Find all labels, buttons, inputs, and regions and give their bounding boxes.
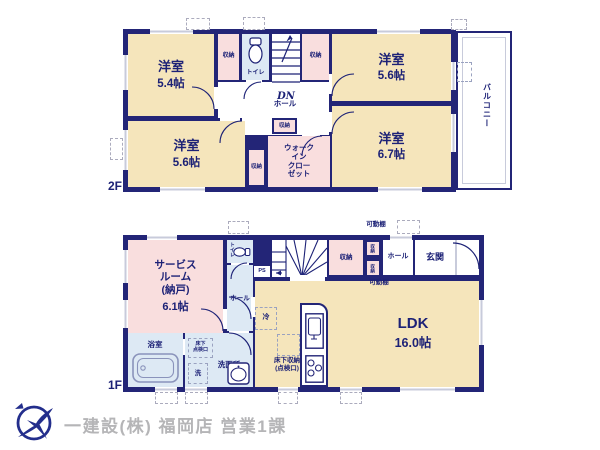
window	[390, 235, 412, 240]
closet-2f-hall: 収納	[272, 118, 297, 134]
vent-dashed-box	[110, 138, 123, 160]
sink-icon	[227, 362, 250, 385]
room-size: 5.4帖	[157, 75, 185, 91]
kitchen-sink-icon	[305, 313, 324, 349]
laundry-space: 洗	[188, 363, 208, 384]
vent-dashed-box	[340, 392, 362, 404]
door-arc	[244, 82, 261, 99]
ldk-label: LDK 16.0帖	[378, 315, 448, 351]
door-arc	[192, 87, 214, 109]
kitchen-counter	[300, 303, 328, 387]
vent-dashed-box	[243, 17, 265, 30]
underfloor-storage-label: 床下収納 (点検口)	[263, 357, 311, 372]
vent-dashed-box	[451, 19, 467, 30]
room-name: 洋室	[158, 59, 184, 74]
stairs-down-label: DN	[270, 91, 302, 103]
door-arc	[332, 112, 354, 134]
company-logo-icon	[8, 396, 58, 446]
door-arc	[229, 333, 251, 355]
window	[400, 387, 455, 392]
closet-1f: 収納	[329, 240, 363, 275]
closet-2f-b: 収納	[302, 34, 329, 80]
closet-2f-a: 収納	[218, 34, 239, 80]
underfloor-access-box: 床下 点検口	[188, 338, 213, 358]
door-arc	[231, 263, 247, 279]
doorway	[251, 297, 255, 317]
floor-plan-2f: 洋室 5.4帖 収納 トイレ ホール	[123, 29, 456, 192]
doorway	[290, 275, 325, 281]
movable-shelf-label-bottom: 可動棚	[361, 279, 397, 287]
window	[123, 250, 128, 283]
floor-plan-page: 洋室 5.4帖 収納 トイレ ホール	[0, 0, 600, 450]
closet-1f-small-bottom: 収納	[365, 259, 381, 277]
window	[147, 235, 177, 240]
stairs-steps-icon	[272, 34, 300, 92]
stairs-down	[272, 34, 300, 92]
door-arc	[332, 74, 354, 96]
toilet-room-1f: トイレ	[227, 240, 253, 263]
bathroom: 浴室	[128, 333, 183, 387]
balcony-label: バルコニー	[482, 83, 491, 128]
vent-dashed-box	[155, 392, 178, 404]
vent-dashed-box	[397, 220, 420, 234]
pipe-space: PS	[253, 265, 271, 278]
window	[377, 29, 420, 34]
entrance-hall: 玄関	[415, 240, 455, 275]
company-name: 一建設(株) 福岡店 営業1課	[64, 412, 287, 437]
toilet-room-2f: トイレ	[242, 34, 269, 80]
hall-1f-right: ホール	[383, 240, 413, 275]
door-arc	[229, 297, 251, 319]
toilet-icon	[233, 246, 251, 259]
floor-1f-label: 1F	[98, 378, 122, 392]
vent-dashed-box	[185, 392, 208, 404]
toilet-label: トイレ	[242, 70, 269, 77]
toilet-icon	[246, 37, 265, 65]
door-arc	[302, 136, 322, 156]
stairs-winder-icon	[272, 240, 327, 277]
refrigerator-space: 冷	[255, 307, 277, 330]
window	[160, 187, 205, 192]
floor-plan-1f: サービス ルーム (納戸) 6.1帖 トイレ PS	[123, 235, 484, 392]
underfloor-storage-box	[277, 334, 300, 356]
doorway	[223, 309, 227, 329]
entrance-door-arc	[453, 243, 479, 269]
vestibule-2f	[218, 82, 242, 118]
door-arc	[220, 121, 242, 143]
vent-dashed-box	[457, 62, 472, 82]
window	[479, 300, 484, 345]
vent-dashed-box	[186, 18, 210, 30]
closet-2f-d: 収納	[247, 148, 266, 187]
doorway	[214, 87, 218, 109]
window	[123, 130, 128, 170]
window	[123, 55, 128, 90]
floor-2f-label: 2F	[98, 179, 122, 193]
vent-dashed-box	[228, 221, 249, 234]
closet-1f-small-top: 収納	[365, 240, 381, 257]
window	[378, 187, 422, 192]
doorway	[183, 339, 185, 355]
movable-shelf-label-top: 可動棚	[358, 221, 394, 229]
bathtub-icon	[132, 353, 179, 383]
window	[123, 300, 128, 328]
door-arc	[201, 309, 223, 331]
vent-dashed-box	[278, 392, 298, 404]
stairs-up	[272, 240, 327, 277]
balcony: バルコニー	[456, 31, 512, 190]
